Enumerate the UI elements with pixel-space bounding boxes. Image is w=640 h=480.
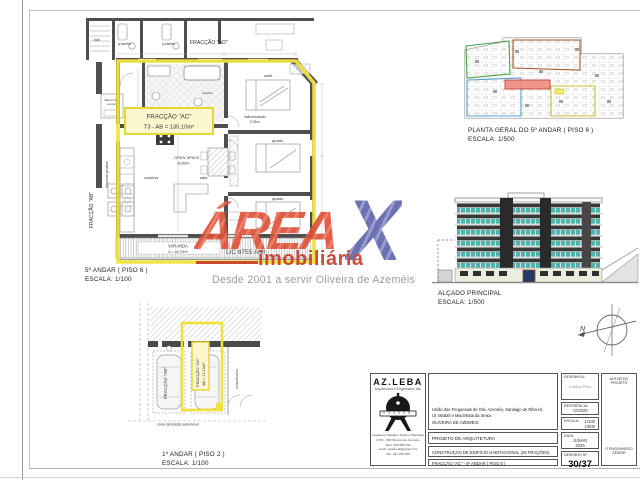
- general-plan-caption-line1: PLANTA GERAL DO 5º ANDAR ( PISO 6 ): [468, 126, 593, 135]
- drawing-number-label: DESENHO Nº:: [562, 452, 598, 457]
- room-label-quarto1: quarto: [272, 138, 284, 143]
- floor-plan-upper-rooms: hall q.banho q.banho FRACÇÃO "AD": [86, 18, 314, 60]
- room-label-hall: hall: [94, 38, 100, 42]
- unit-label-area: T3 - AB = 135,10m²: [144, 125, 194, 131]
- room-label-sala: sala: [200, 175, 208, 180]
- general-plan-caption: PLANTA GERAL DO 5º ANDAR ( PISO 6 ) ESCA…: [468, 126, 593, 145]
- construction-description: CONSTRUÇÃO DE EDIFÍCIO HABITACIONAL (26 …: [429, 447, 557, 458]
- elevation-drawing: [430, 190, 640, 288]
- title-block-reference-cell: REFERÊNCIA: 72/2020: [561, 402, 599, 415]
- drawing-sheet: hall q.banho q.banho FRACÇÃO "AD" hall e…: [0, 0, 640, 480]
- parking-label-ac: FRACÇÃO "AC": [195, 357, 200, 387]
- room-label-open-space-area: 43,00m²: [177, 162, 190, 166]
- watermark-underline: [196, 261, 258, 264]
- company-subtitle: Arquitectura e Engenharia, lda.: [371, 387, 425, 391]
- title-block-date-cell: DATA: JUNHO 2025: [561, 432, 599, 449]
- watermark-tagline: Desde 2001 a servir Oliveira de Azeméis: [212, 274, 415, 286]
- sheet-outer-border: [22, 0, 23, 480]
- title-block-number-cell: DESENHO Nº: 30/37: [561, 451, 599, 466]
- unit-label-name: FRACÇÃO "AC": [147, 114, 192, 121]
- title-block-scale-cell: ESCALA: 1/100 1/500: [561, 417, 599, 430]
- municipality-line3: OLIVEIRA DE AZEMÉIS: [432, 420, 543, 426]
- agency-watermark: ÁREA X imobiliária Desde 2001 a servir O…: [195, 198, 421, 290]
- title-block-construction-cell: CONSTRUÇÃO DE EDIFÍCIO HABITACIONAL (26 …: [428, 446, 558, 457]
- room-label-fraccao-ad: FRACÇÃO "AD": [190, 39, 228, 46]
- fraction-description: FRACÇÃO "AC" - 5º ANDAR ( PISO 6 ): [429, 460, 557, 469]
- parking-plan-drawing: FRACÇÃO "AB" FRACÇÃO "AC" AB = 14,15m² z…: [128, 303, 268, 449]
- drew-label: DESENHOU:: [562, 374, 598, 379]
- general-plan-caption-line2: ESCALA: 1/500: [468, 135, 593, 144]
- parking-label-zona-tecnica: zona técnica: [235, 369, 239, 389]
- sheet-frame-left: [29, 10, 30, 468]
- title-block-drew-cell: DESENHOU: Cristina Pires: [561, 373, 599, 400]
- room-label-suite: suite: [264, 73, 273, 78]
- north-label: N: [580, 326, 586, 333]
- room-label-cozinha: cozinha: [144, 175, 159, 180]
- elevation-caption: ALÇADO PRINCIPAL ESCALA: 1/500: [438, 289, 502, 308]
- drew-name: Cristina Pires: [562, 385, 598, 389]
- room-label-hall-circ: hall/circulação: [244, 115, 266, 119]
- company-address: Arquitecto Salvador Tavares Machado 3720…: [371, 433, 425, 457]
- watermark-imobiliaria-text: imobiliária: [258, 248, 364, 271]
- title-block-company-cell: AZ.LEBA Arquitectura e Engenharia, lda. …: [370, 373, 426, 466]
- parking-caption-line2: ESCALA: 1/100: [162, 459, 225, 468]
- company-name: AZ.LEBA: [371, 377, 425, 387]
- north-compass: N: [570, 300, 638, 364]
- room-label-varanda-area: A = 16,70m²: [168, 250, 188, 254]
- room-label-qbanho-suite: q.banho: [202, 91, 213, 95]
- parking-caption-line1: 1º ANDAR ( PISO 2 ): [162, 450, 225, 459]
- author-label: AUTOR DO PROJETO: [602, 377, 636, 385]
- sheet-frame-bottom-outer: [0, 477, 640, 478]
- floor-plan-caption: 5º ANDAR ( PISO 6 ) ESCALA: 1/100: [85, 266, 148, 285]
- room-label-qbanho: q.banho: [118, 42, 131, 46]
- title-block-project-cell: PROJETO DE ARQUITETURA: [428, 432, 558, 444]
- parking-caption: 1º ANDAR ( PISO 2 ) ESCALA: 1/100: [162, 450, 225, 469]
- title-block-fraction-cell: FRACÇÃO "AC" - 5º ANDAR ( PISO 6 ): [428, 459, 558, 466]
- room-label-qbanho2: q.banho: [162, 42, 175, 46]
- floor-plan-caption-line1: 5º ANDAR ( PISO 6 ): [85, 266, 148, 275]
- scale-label: ESCALA:: [562, 418, 581, 423]
- date-year: 2025: [562, 443, 598, 448]
- drawing-number-value: 30/37: [562, 459, 598, 470]
- engineer-label-line2: SÉNIOR: [602, 451, 636, 455]
- general-plan-drawing: [455, 30, 640, 130]
- room-label-fraccao-ab: FRACÇÃO "AB": [88, 192, 95, 228]
- title-block-author-cell: AUTOR DO PROJETO O ENGENHEIRO SÉNIOR: [601, 373, 637, 466]
- elevation-caption-line1: ALÇADO PRINCIPAL: [438, 289, 502, 298]
- company-address-line: Tlm. 911 295 698: [371, 452, 425, 457]
- title-block: AZ.LEBA Arquitectura e Engenharia, lda. …: [368, 372, 638, 468]
- elevation-building: [455, 193, 602, 282]
- floor-plan-caption-line2: ESCALA: 1/100: [85, 275, 148, 284]
- general-plan-rooms: [463, 36, 625, 120]
- scale-value-2: 1/500: [585, 424, 595, 429]
- reference-value: 72/2020: [562, 408, 598, 413]
- elevation-caption-line2: ESCALA: 1/500: [438, 298, 502, 307]
- room-label-varanda: VARANDA: [168, 244, 188, 249]
- title-block-municipality-cell: União das Freguesias de Oliv. Azeméis, S…: [428, 373, 558, 430]
- room-label-hall-circ-area: 9,75m²: [250, 120, 260, 124]
- sheet-frame-top: [29, 10, 640, 11]
- parking-label-zona-circulacao: zona circulação automóvel: [157, 423, 199, 427]
- parking-bays: FRACÇÃO "AB": [153, 346, 225, 413]
- parking-label-ac-area: AB = 14,15m²: [202, 362, 206, 386]
- parking-label-ab: FRACÇÃO "AB": [163, 367, 168, 399]
- company-logo-icon: [378, 393, 418, 431]
- company-address-line: 3720 - 000 Oliveira de Azeméis: [371, 438, 425, 443]
- project-type: PROJETO DE ARQUITETURA: [429, 433, 557, 444]
- room-label-hall-entrada-2: comum: [107, 102, 117, 106]
